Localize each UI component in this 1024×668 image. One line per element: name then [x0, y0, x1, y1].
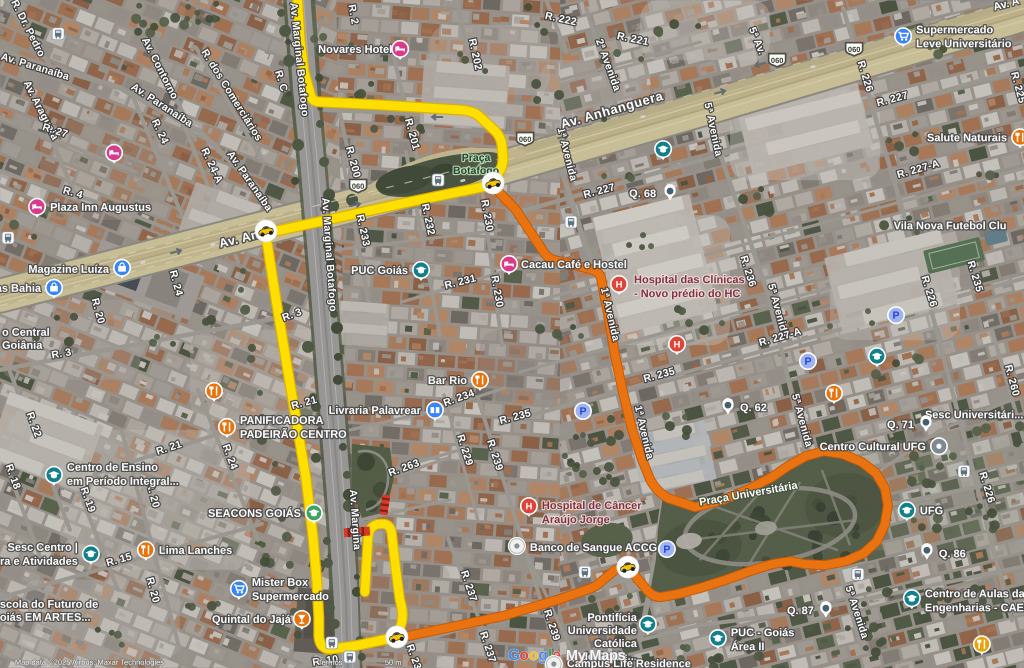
svg-text:Q. 86: Q. 86 [939, 548, 966, 560]
svg-text:Q. 62: Q. 62 [740, 402, 767, 414]
svg-text:Termos: Termos [318, 658, 343, 667]
svg-text:Mister Box: Mister Box [252, 577, 309, 589]
svg-text:Engenharias - CAE: Engenharias - CAE [925, 602, 1024, 614]
svg-text:P: P [579, 406, 586, 418]
svg-text:50 m: 50 m [385, 658, 402, 667]
svg-text:em Período Integral...: em Período Integral... [67, 476, 179, 488]
svg-text:Goiânia: Goiânia [2, 340, 43, 352]
svg-text:Q. 71: Q. 71 [887, 419, 914, 431]
svg-text:G: G [508, 647, 520, 664]
svg-text:Centro de Aulas das: Centro de Aulas das [925, 588, 1024, 600]
svg-text:P: P [663, 544, 670, 556]
svg-text:Q. 87: Q. 87 [787, 605, 814, 617]
svg-text:Hospital das Clínicas: Hospital das Clínicas [634, 274, 745, 286]
svg-text:Plaza Inn Augustus: Plaza Inn Augustus [50, 202, 151, 214]
svg-text:H: H [674, 339, 681, 350]
svg-text:Sesc Centro |: Sesc Centro | [8, 542, 78, 554]
svg-text:Vila Nova Futebol Clu: Vila Nova Futebol Clu [894, 220, 1007, 232]
svg-text:Supermercado: Supermercado [252, 591, 329, 603]
svg-text:oiás EM ARTES...: oiás EM ARTES... [0, 612, 91, 624]
svg-text:PUC Goiás: PUC Goiás [351, 265, 408, 277]
svg-text:tura e Atividades: tura e Atividades [0, 556, 78, 568]
svg-text:My Maps: My Maps [566, 648, 626, 664]
svg-text:o Central: o Central [2, 327, 50, 339]
svg-text:Sesc Universitári...: Sesc Universitári... [925, 409, 1023, 421]
svg-text:Livraria Palavrear: Livraria Palavrear [329, 405, 422, 417]
svg-text:H: H [525, 501, 532, 512]
svg-text:Bar Rio: Bar Rio [428, 375, 467, 387]
svg-text:Centro Cultural UFG: Centro Cultural UFG [820, 441, 926, 453]
svg-text:Novares Hotel: Novares Hotel [318, 44, 392, 56]
svg-text:UFG: UFG [920, 505, 943, 517]
svg-text:Cacau Café e Hostel: Cacau Café e Hostel [521, 259, 627, 271]
svg-text:Salute Naturais: Salute Naturais [927, 132, 1007, 144]
svg-text:o: o [519, 647, 528, 664]
svg-text:o: o [529, 647, 538, 664]
svg-text:Araújo Jorge: Araújo Jorge [542, 514, 610, 526]
svg-text:PUC - Goiás: PUC - Goiás [731, 627, 795, 639]
svg-text:Universidade: Universidade [568, 625, 637, 637]
svg-text:scola do Futuro de: scola do Futuro de [0, 599, 98, 611]
svg-text:Supermercado: Supermercado [916, 24, 993, 36]
svg-text:P: P [804, 356, 811, 368]
svg-text:Quintal do Jajá: Quintal do Jajá [212, 614, 292, 626]
svg-text:P: P [892, 310, 899, 322]
svg-text:SEACONS GOIÁS: SEACONS GOIÁS [208, 507, 301, 520]
svg-text:Map data ©2025 Airbus, Maxar T: Map data ©2025 Airbus, Maxar Technologie… [15, 658, 164, 667]
svg-text:Banco de Sangue ACCG: Banco de Sangue ACCG [530, 542, 657, 554]
svg-text:Magazine Luíza: Magazine Luíza [28, 264, 110, 276]
svg-text:Lima Lanches: Lima Lanches [159, 545, 232, 557]
svg-text:H: H [616, 279, 623, 290]
svg-text:PADEIRÃO CENTRO: PADEIRÃO CENTRO [240, 428, 347, 441]
svg-text:Pontifícia: Pontifícia [587, 612, 637, 624]
svg-text:sas Bahia: sas Bahia [0, 283, 42, 295]
svg-text:- Novo prédio do HC: - Novo prédio do HC [634, 288, 740, 300]
svg-text:Praça: Praça [462, 152, 491, 164]
svg-text:Centro de Ensino: Centro de Ensino [67, 462, 158, 474]
svg-text:Hospital de Câncer: Hospital de Câncer [542, 500, 642, 512]
svg-text:Leve Universitário: Leve Universitário [916, 38, 1012, 50]
svg-text:Área II: Área II [731, 640, 765, 653]
svg-text:PANIFICADORA: PANIFICADORA [240, 415, 324, 427]
svg-text:Q. 68: Q. 68 [629, 188, 656, 200]
